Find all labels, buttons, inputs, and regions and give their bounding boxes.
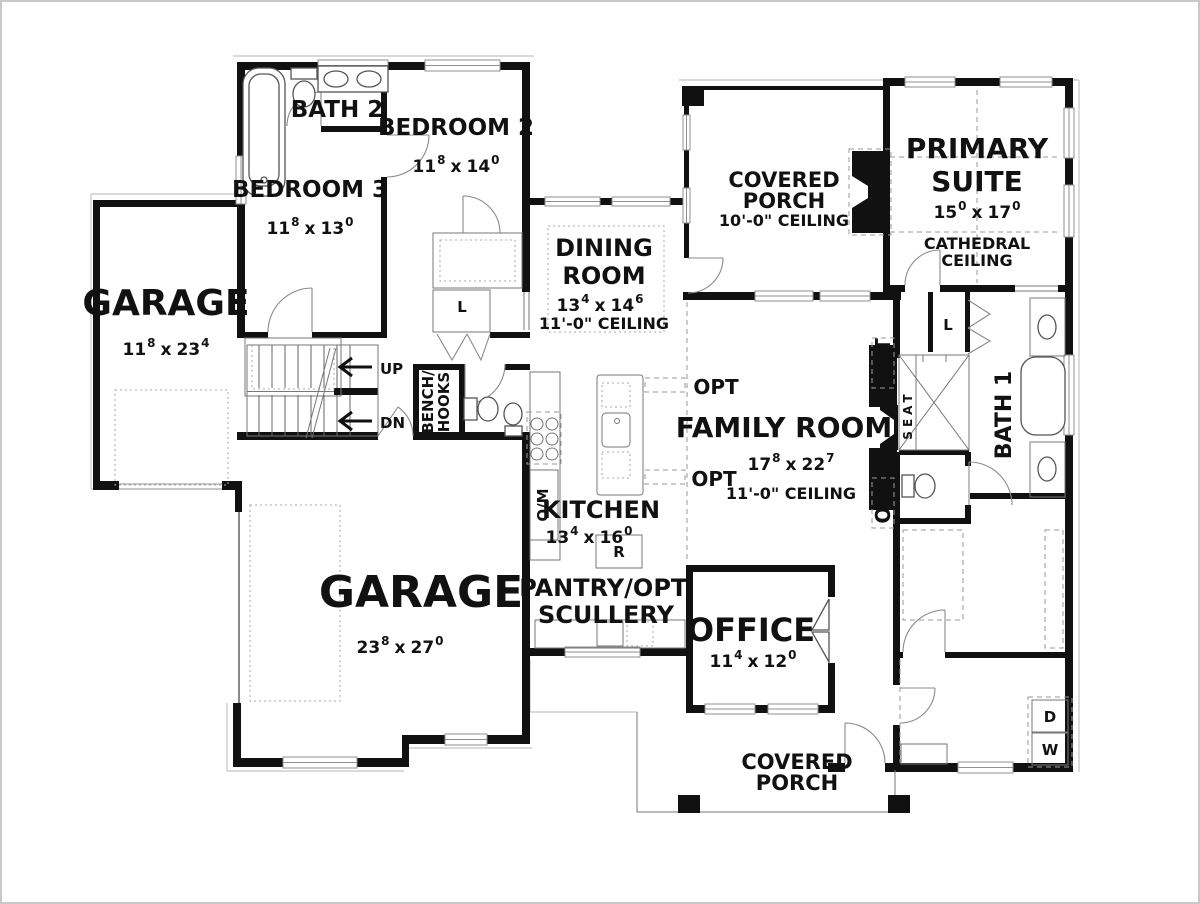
label-up: UP	[380, 360, 403, 378]
room-label-porch-bottom-2: PORCH	[756, 771, 838, 795]
room-label-primary-1: PRIMARY	[906, 132, 1049, 165]
room-label-primary-2: SUITE	[931, 165, 1023, 198]
dim-bedroom3: 118x130	[266, 215, 353, 239]
laundry-bench	[901, 744, 947, 764]
label-oven-microwave: O/M	[534, 488, 552, 521]
opt-band-top	[645, 378, 685, 392]
closet-rod-right	[1045, 530, 1063, 648]
powder-sink-icon	[504, 403, 522, 425]
label-linen-bath1: L	[943, 316, 953, 334]
ceiling-porch-top: 10'-0" CEILING	[719, 211, 849, 230]
floor-plan-drawing: BATH 2 BEDROOM 2 118x140 BEDROOM 3 118x1…	[0, 0, 1200, 904]
label-opt-1: OPT	[693, 375, 739, 399]
ceiling-primary-2: CEILING	[941, 251, 1012, 270]
label-refrigerator: R	[613, 543, 625, 561]
dim-office: 114x120	[709, 648, 796, 672]
ceiling-dining: 11'-0" CEILING	[539, 314, 669, 333]
svg-text:HOOKS: HOOKS	[435, 372, 453, 432]
label-dryer: D	[1044, 708, 1056, 726]
room-label-dining-1: DINING	[555, 234, 653, 262]
label-down: DN	[380, 414, 405, 432]
porch-post	[888, 795, 910, 813]
dim-garage-main: 238x270	[356, 634, 443, 658]
room-label-kitchen: KITCHEN	[542, 496, 660, 524]
closet-rod-left	[903, 530, 963, 620]
room-label-bath1: BATH 1	[992, 371, 1017, 459]
porch-post	[678, 795, 700, 813]
label-linen-bedrooms: L	[457, 298, 467, 316]
room-label-family: FAMILY ROOM	[676, 411, 892, 444]
label-seat: SEAT	[901, 390, 915, 439]
label-washer: W	[1042, 741, 1059, 759]
dim-garage-left: 118x234	[122, 336, 209, 360]
garage-left-parking-space	[115, 390, 228, 485]
bedroom2-closet	[433, 233, 522, 288]
opt-band-bottom	[645, 470, 685, 484]
room-label-garage-main: GARAGE	[319, 567, 523, 618]
bath1-toilet-icon	[902, 475, 914, 497]
room-label-dining-2: ROOM	[562, 262, 645, 290]
room-label-porch-top-2: PORCH	[743, 189, 825, 213]
label-opt-3: OPT	[871, 338, 895, 384]
room-label-bedroom2: BEDROOM 2	[378, 115, 534, 141]
room-label-pantry-2: SCULLERY	[538, 601, 675, 629]
bath2-toilet-icon	[291, 68, 317, 79]
dim-dining: 134x146	[556, 292, 643, 316]
ceiling-family: 11'-0" CEILING	[726, 484, 856, 503]
label-opt-2: OPT	[691, 467, 737, 491]
powder-toilet-icon	[464, 398, 477, 420]
kitchen-island	[597, 375, 643, 495]
label-opt-4: OPT	[871, 478, 895, 524]
bath1-tub-icon	[1021, 357, 1065, 435]
room-label-pantry-1: PANTRY/OPT.	[519, 574, 693, 602]
room-label-bedroom3: BEDROOM 3	[232, 177, 388, 203]
dim-family: 178x227	[747, 451, 834, 475]
room-label-office: OFFICE	[687, 611, 815, 649]
label-bench-hooks: BENCH/ HOOKS	[419, 370, 453, 434]
island-sink-icon	[602, 413, 630, 447]
dim-bedroom2: 118x140	[412, 153, 499, 177]
dim-primary: 150x170	[933, 199, 1020, 223]
floor-plan-canvas: BATH 2 BEDROOM 2 118x140 BEDROOM 3 118x1…	[0, 0, 1200, 904]
room-label-garage-left: GARAGE	[82, 283, 249, 324]
room-label-bath2: BATH 2	[291, 97, 384, 123]
